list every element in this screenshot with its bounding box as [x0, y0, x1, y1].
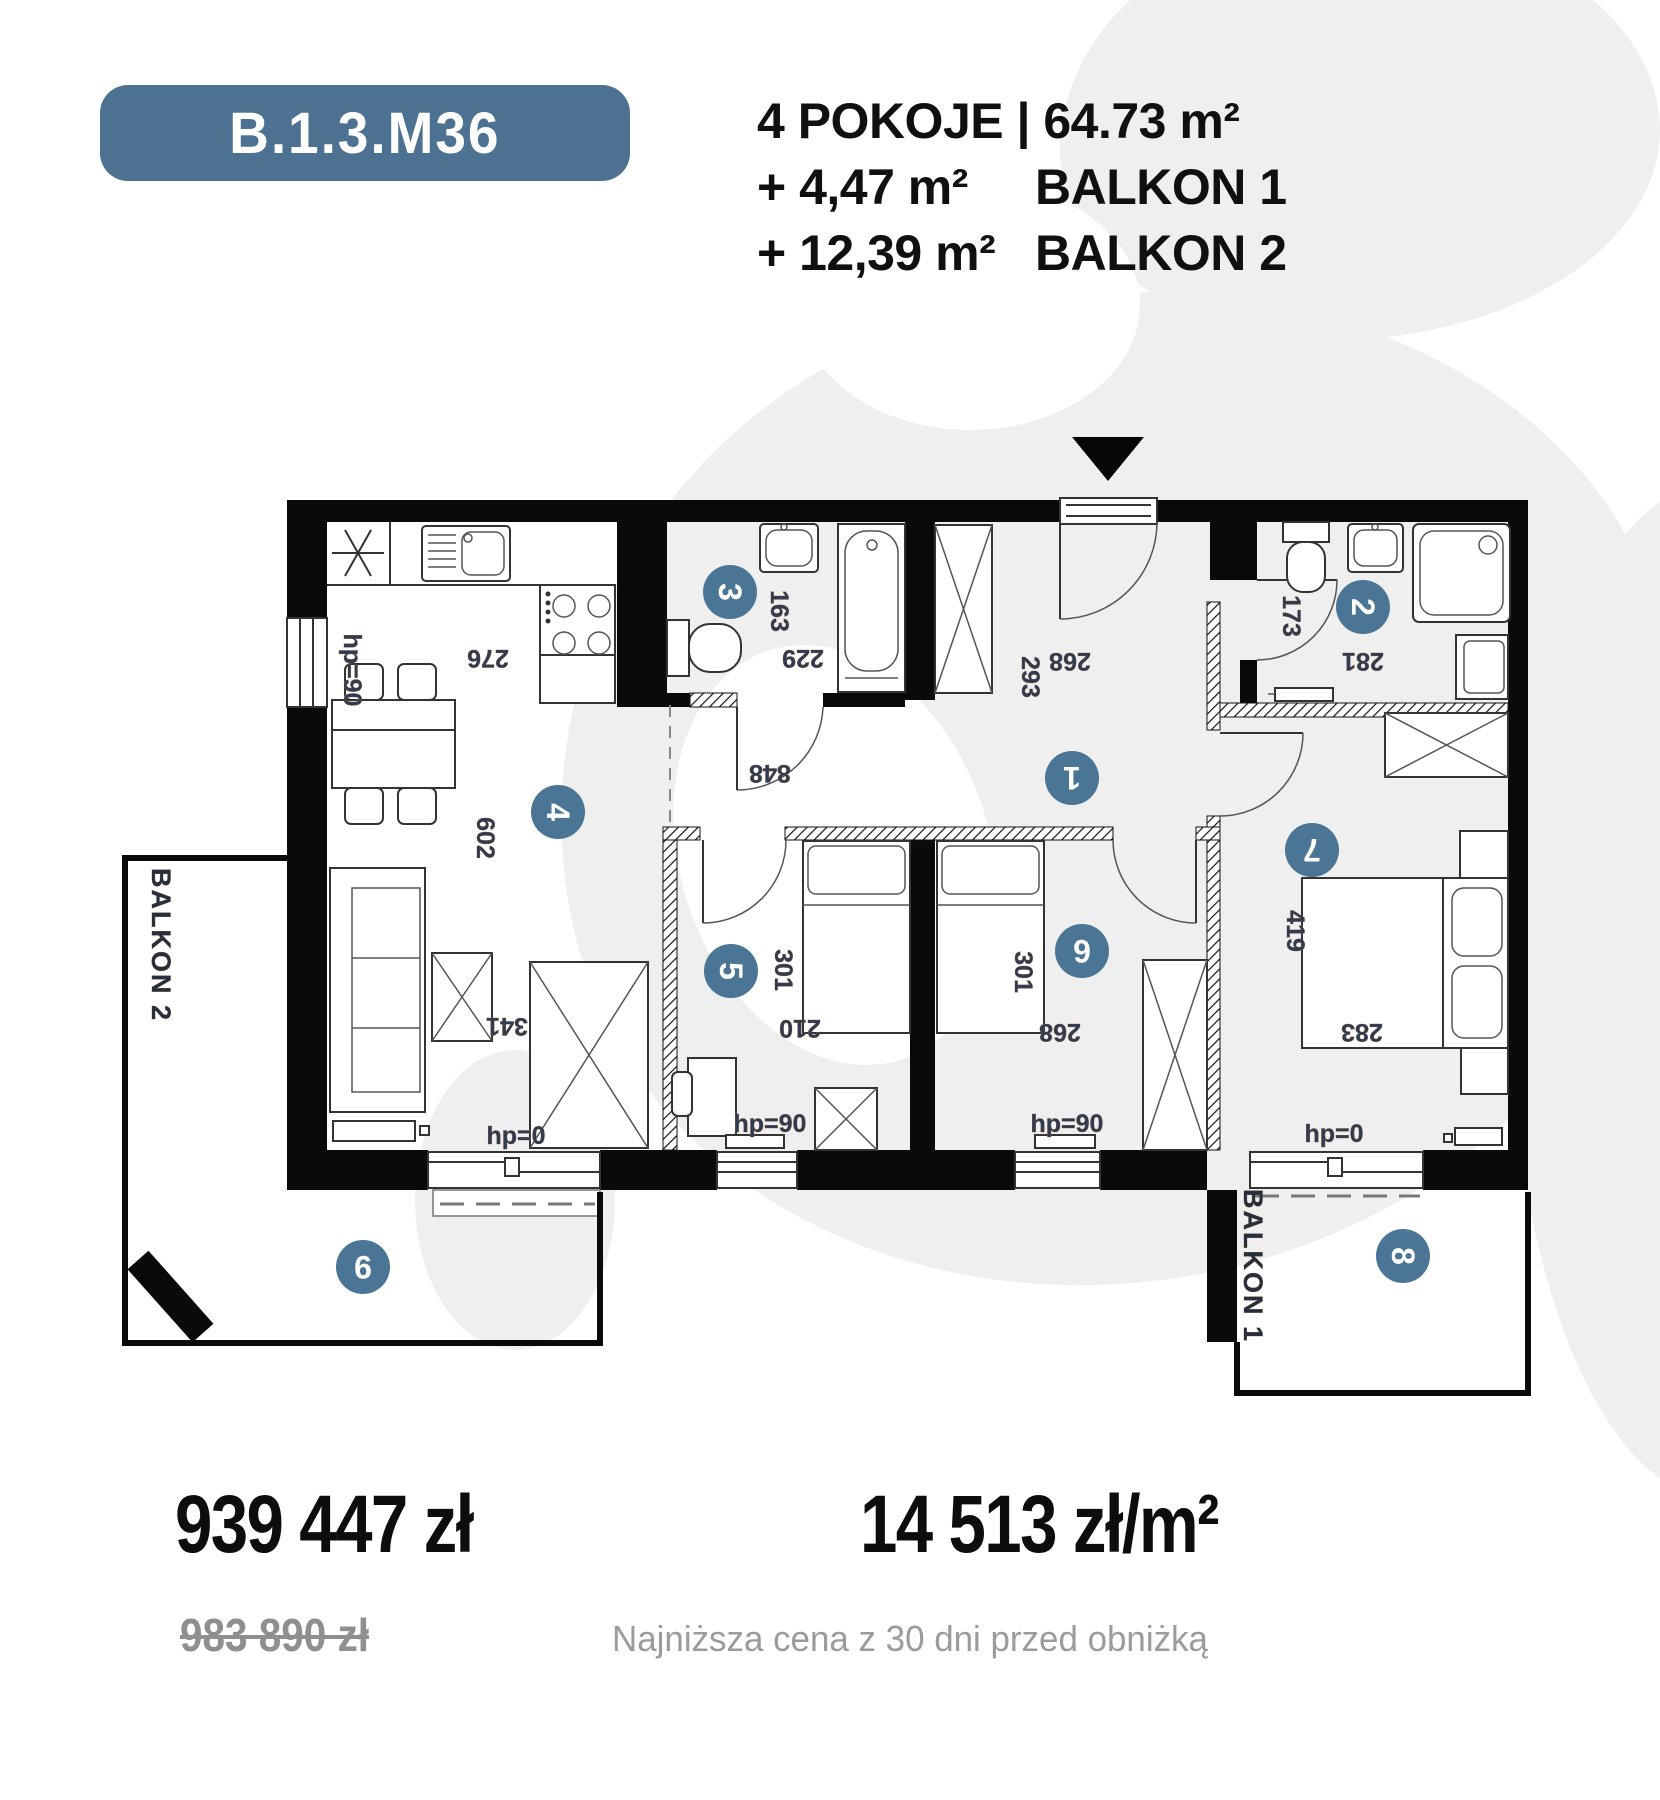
dim-bath2-height: 173: [1277, 595, 1305, 637]
svg-text:8: 8: [1385, 1247, 1421, 1265]
svg-text:7: 7: [1303, 832, 1321, 868]
room-badge-1: 1: [1045, 751, 1099, 805]
washing-machine-icon: [1456, 635, 1508, 699]
svg-text:5: 5: [713, 962, 749, 980]
entrance-arrow-icon: [1072, 437, 1144, 481]
living-balcony-door-icon: [428, 1152, 600, 1216]
bathtub-icon: [838, 524, 905, 692]
sofa-icon: [330, 868, 425, 1112]
room7-balcony-door-icon: [1250, 1152, 1423, 1196]
balkon1-area-text: + 4,47 m²: [757, 158, 1035, 216]
dim-kitchen-width: 276: [467, 644, 509, 672]
svg-text:9: 9: [354, 1249, 372, 1285]
room5-bed-icon: [803, 841, 910, 1033]
dim-bath2-width: 281: [1342, 647, 1384, 675]
bath3-washbasin-icon: [760, 524, 818, 572]
room-badge-7: 7: [1285, 823, 1339, 877]
svg-text:1: 1: [1063, 760, 1081, 796]
balkon1-label-text: BALKON 1: [1035, 158, 1287, 216]
dim-hall-width: 268: [1049, 647, 1091, 675]
room7-bed-icon: [1302, 878, 1508, 1048]
dim-room6-width: 268: [1039, 1018, 1081, 1046]
summary-line-balkon2: + 12,39 m² BALKON 2: [757, 224, 1287, 290]
room6-bed-icon: [937, 841, 1044, 1033]
svg-text:4: 4: [540, 803, 576, 821]
dim-room7-width: 283: [1341, 1018, 1383, 1046]
dim-hall-height: 293: [1016, 656, 1044, 698]
price-note: Najniższa cena z 30 dni przed obniżką: [612, 1618, 1208, 1660]
dim-room7-length: 419: [1281, 910, 1309, 952]
bath2-washbasin-icon: [1348, 524, 1403, 572]
kitchen-window-icon: [287, 618, 327, 707]
bath2-toilet-icon: [1283, 522, 1329, 592]
floorplan-page: { "badge": { "unit_id": "B.1.3.M36" }, "…: [0, 0, 1660, 1800]
dim-living-width: 341: [486, 1012, 528, 1040]
room-badge-4: 4: [531, 785, 585, 839]
svg-text:2: 2: [1345, 598, 1381, 616]
room-badge-2: 2: [1336, 580, 1390, 634]
kitchen-sink-icon: [422, 526, 510, 581]
armchair-icon: [432, 953, 492, 1041]
bath3-toilet-icon: [667, 620, 741, 676]
entrance-door-frame: [1060, 498, 1157, 524]
svg-text:6: 6: [1073, 933, 1091, 969]
shower-icon: [1413, 524, 1510, 622]
unit-badge: B.1.3.M36: [100, 85, 630, 181]
room5-desk-icon: [672, 1058, 736, 1136]
room7-radiator-icon: [1444, 1128, 1502, 1145]
dim-hall-length: 848: [749, 759, 791, 787]
dim-room5-width: 210: [779, 1014, 821, 1042]
balkon2-label: BALKON 2: [146, 868, 176, 1022]
room-badge-3: 3: [703, 565, 757, 619]
living-wardrobe-icon: [530, 962, 648, 1148]
balkon2-label-text: BALKON 2: [1035, 224, 1287, 282]
dishwasher-star-icon: [332, 530, 384, 576]
room6-window-icon: [1015, 1152, 1100, 1188]
dim-bath3-height: 163: [765, 590, 793, 632]
room-badge-5: 5: [704, 944, 758, 998]
tv-bench-icon: [333, 1121, 429, 1141]
price-per-m2: 14 513 zł/m²: [860, 1478, 1218, 1572]
rooms-and-area-text: 4 POKOJE | 64.73 m²: [757, 92, 1240, 150]
room7-wardrobe-icon: [1385, 713, 1508, 777]
svg-text:3: 3: [712, 583, 748, 601]
price-current: 939 447 zł: [175, 1478, 473, 1572]
unit-summary: 4 POKOJE | 64.73 m² + 4,47 m² BALKON 1 +…: [757, 92, 1287, 290]
room5-window-icon: [717, 1152, 797, 1188]
room6-door-swing: [1113, 840, 1196, 923]
room5-door-swing: [703, 840, 786, 923]
room6-wardrobe-icon: [1143, 960, 1207, 1150]
dim-living-length: 602: [471, 817, 499, 859]
floor-plan: 276 602 341 163 229 848 293 268 173 281 …: [85, 415, 1560, 1420]
balkon1-outline: [1237, 1192, 1528, 1393]
room5-wardrobe-icon: [815, 1088, 877, 1150]
balkon1-label: BALKON 1: [1238, 1189, 1268, 1343]
room-badge-6: 6: [1055, 924, 1109, 978]
unit-id: B.1.3.M36: [229, 100, 500, 167]
entrance-door-swing: [1060, 522, 1157, 619]
dim-bath3-width: 229: [782, 644, 824, 672]
hp-living-door: hp=0: [486, 1122, 545, 1150]
room7-nightstand-bottom-icon: [1461, 1048, 1508, 1094]
room7-door-swing: [1220, 733, 1303, 816]
room-badge-9: 9: [336, 1240, 390, 1294]
hp-room5: hp=90: [734, 1110, 807, 1138]
summary-line-rooms-area: 4 POKOJE | 64.73 m²: [757, 92, 1287, 158]
dim-room5-length: 301: [769, 949, 797, 991]
dim-room6-length: 301: [1009, 951, 1037, 993]
room-badge-8: 8: [1376, 1229, 1430, 1283]
hp-living-side: hp=90: [338, 634, 366, 707]
bath2-radiator-icon: [1268, 688, 1333, 701]
summary-line-balkon1: + 4,47 m² BALKON 1: [757, 158, 1287, 224]
price-old: 983 890 zł: [180, 1608, 369, 1662]
hp-room7: hp=0: [1304, 1120, 1363, 1148]
hall-wardrobe-icon: [935, 525, 992, 693]
room7-nightstand-top-icon: [1460, 831, 1508, 878]
hp-room6: hp=90: [1031, 1110, 1104, 1138]
balkon2-area-text: + 12,39 m²: [757, 224, 1035, 282]
